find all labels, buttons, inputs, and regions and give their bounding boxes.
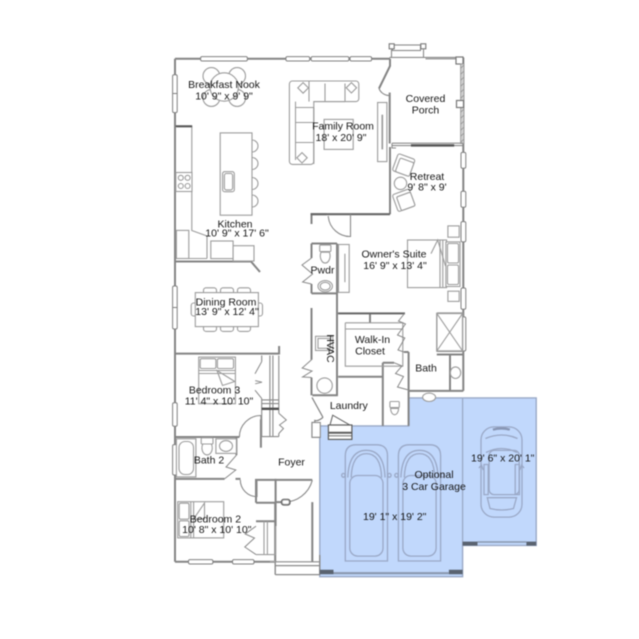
svg-text:Pwdr: Pwdr: [311, 265, 335, 277]
svg-text:Breakfast Nook: Breakfast Nook: [188, 79, 261, 91]
svg-text:13' 9" x 12' 4": 13' 9" x 12' 4": [195, 306, 259, 318]
svg-text:10' 8" x 10' 10": 10' 8" x 10' 10": [182, 524, 252, 536]
svg-text:10' 9" x 9' 9": 10' 9" x 9' 9": [195, 91, 253, 103]
svg-text:Owner's Suite: Owner's Suite: [361, 249, 426, 261]
svg-text:19' 1" x 19' 2": 19' 1" x 19' 2": [363, 511, 427, 523]
svg-text:11' 4" x 10' 10": 11' 4" x 10' 10": [185, 396, 254, 408]
svg-text:Foyer: Foyer: [278, 457, 305, 469]
svg-text:3 Car Garage: 3 Car Garage: [402, 481, 466, 493]
svg-text:Laundry: Laundry: [330, 400, 369, 412]
svg-text:HVAC: HVAC: [324, 334, 336, 363]
svg-text:Closet: Closet: [355, 346, 385, 358]
svg-text:Bath 2: Bath 2: [194, 455, 225, 467]
svg-text:18' x 20' 9": 18' x 20' 9": [316, 132, 367, 144]
svg-text:10' 9" x 17' 6": 10' 9" x 17' 6": [205, 228, 269, 240]
svg-text:Bath: Bath: [415, 363, 437, 375]
svg-text:16' 9" x 13' 4": 16' 9" x 13' 4": [363, 260, 427, 272]
svg-text:19' 6" x 20' 1": 19' 6" x 20' 1": [471, 453, 535, 465]
svg-text:Covered: Covered: [406, 93, 446, 105]
svg-text:Porch: Porch: [412, 105, 440, 117]
svg-text:Optional: Optional: [414, 469, 453, 481]
svg-text:Walk-In: Walk-In: [355, 334, 390, 346]
svg-text:9' 8" x 9': 9' 8" x 9': [407, 182, 446, 194]
svg-text:Family Room: Family Room: [312, 121, 374, 133]
